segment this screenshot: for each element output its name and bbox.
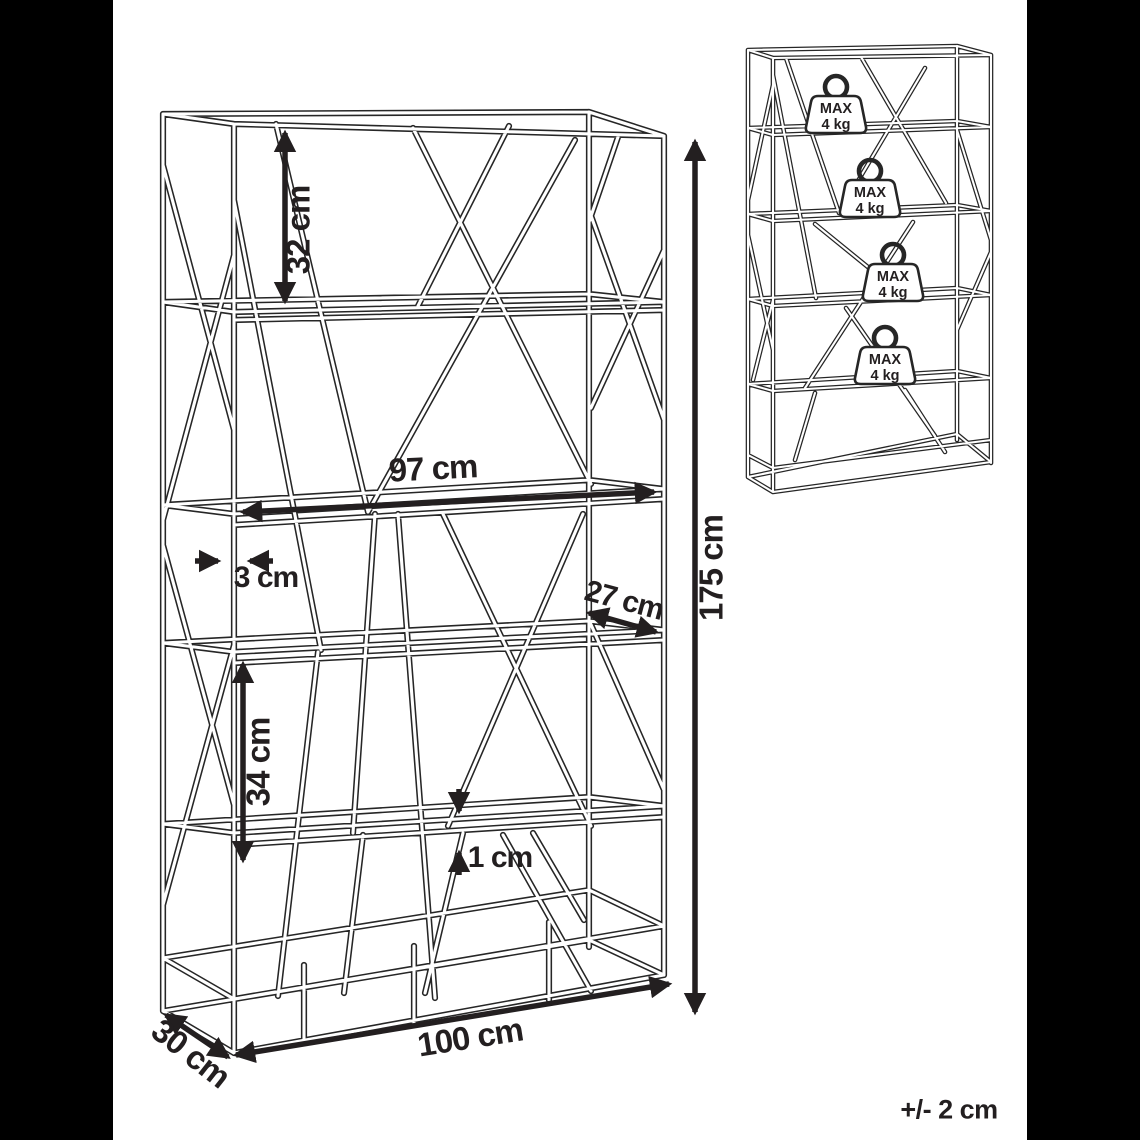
tolerance-note: +/- 2 cm	[900, 1097, 997, 1124]
weight-label-kg-2: 4 kg	[855, 201, 884, 217]
dimension-label-section-height: 34 cm	[242, 718, 275, 807]
weight-label-max-1: MAX	[820, 101, 853, 117]
weight-label-kg-4: 4 kg	[870, 368, 899, 384]
weight-label-max-4: MAX	[869, 352, 902, 368]
weight-label-max-2: MAX	[854, 185, 887, 201]
dimension-label-top-section-height: 32 cm	[282, 186, 315, 275]
dimension-label-shelf-thickness: 1 cm	[468, 843, 532, 873]
weight-label-kg-1: 4 kg	[821, 117, 850, 133]
dimension-label-frame-thickness: 3 cm	[234, 563, 298, 593]
dimension-label-total-height: 175 cm	[695, 515, 728, 621]
product-dimension-image: MAX 4 kg MAX 4 kg MAX 4 kg MAX 4 kg	[113, 0, 1027, 1140]
dimension-label-shelf-inner-width: 97 cm	[388, 449, 478, 487]
page: { "tolerance_note": "+/- 2 cm", "main_vi…	[0, 0, 1140, 1140]
weight-icon-2: MAX 4 kg	[840, 160, 900, 217]
weight-icon-1: MAX 4 kg	[806, 76, 866, 133]
weight-label-kg-3: 4 kg	[878, 285, 907, 301]
weight-label-max-3: MAX	[877, 269, 910, 285]
